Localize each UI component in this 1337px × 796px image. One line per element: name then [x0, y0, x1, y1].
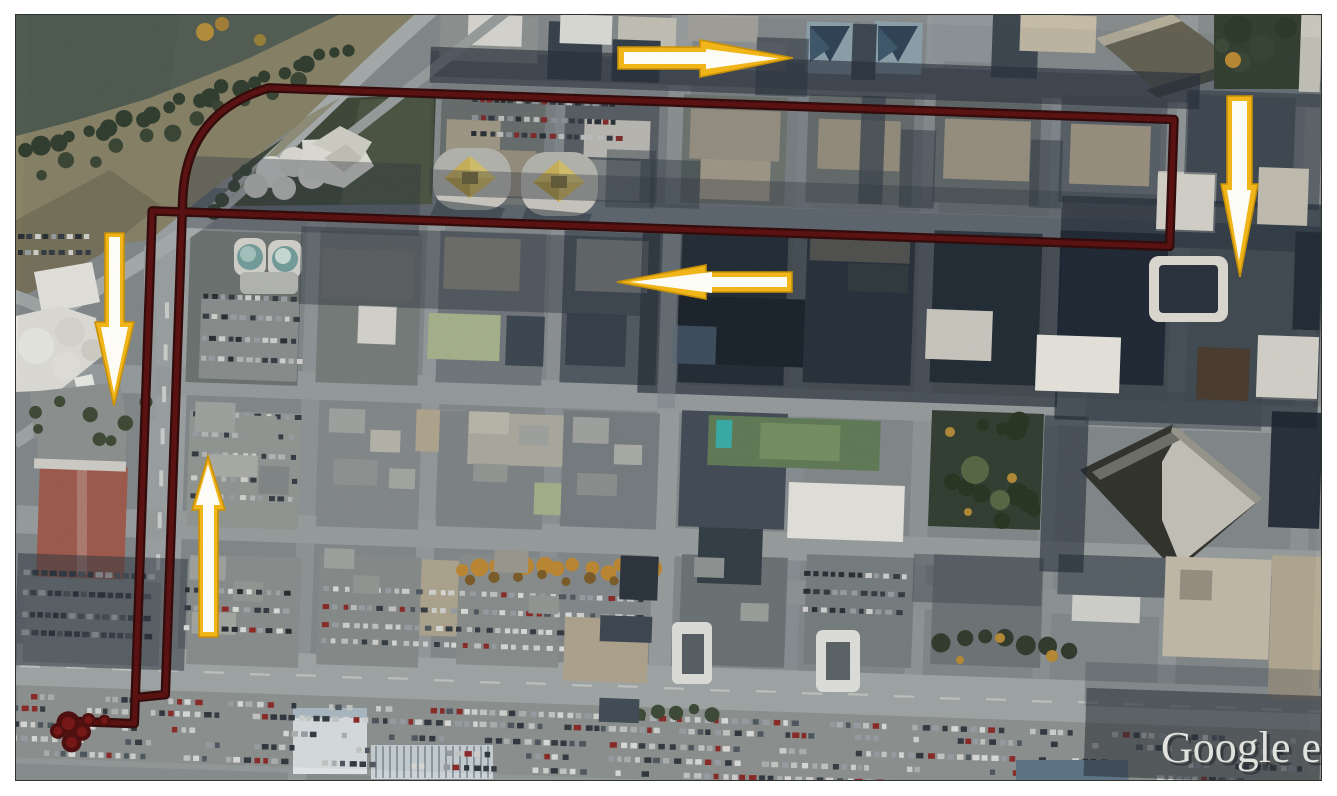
svg-text:Google e: Google e — [1161, 723, 1321, 772]
